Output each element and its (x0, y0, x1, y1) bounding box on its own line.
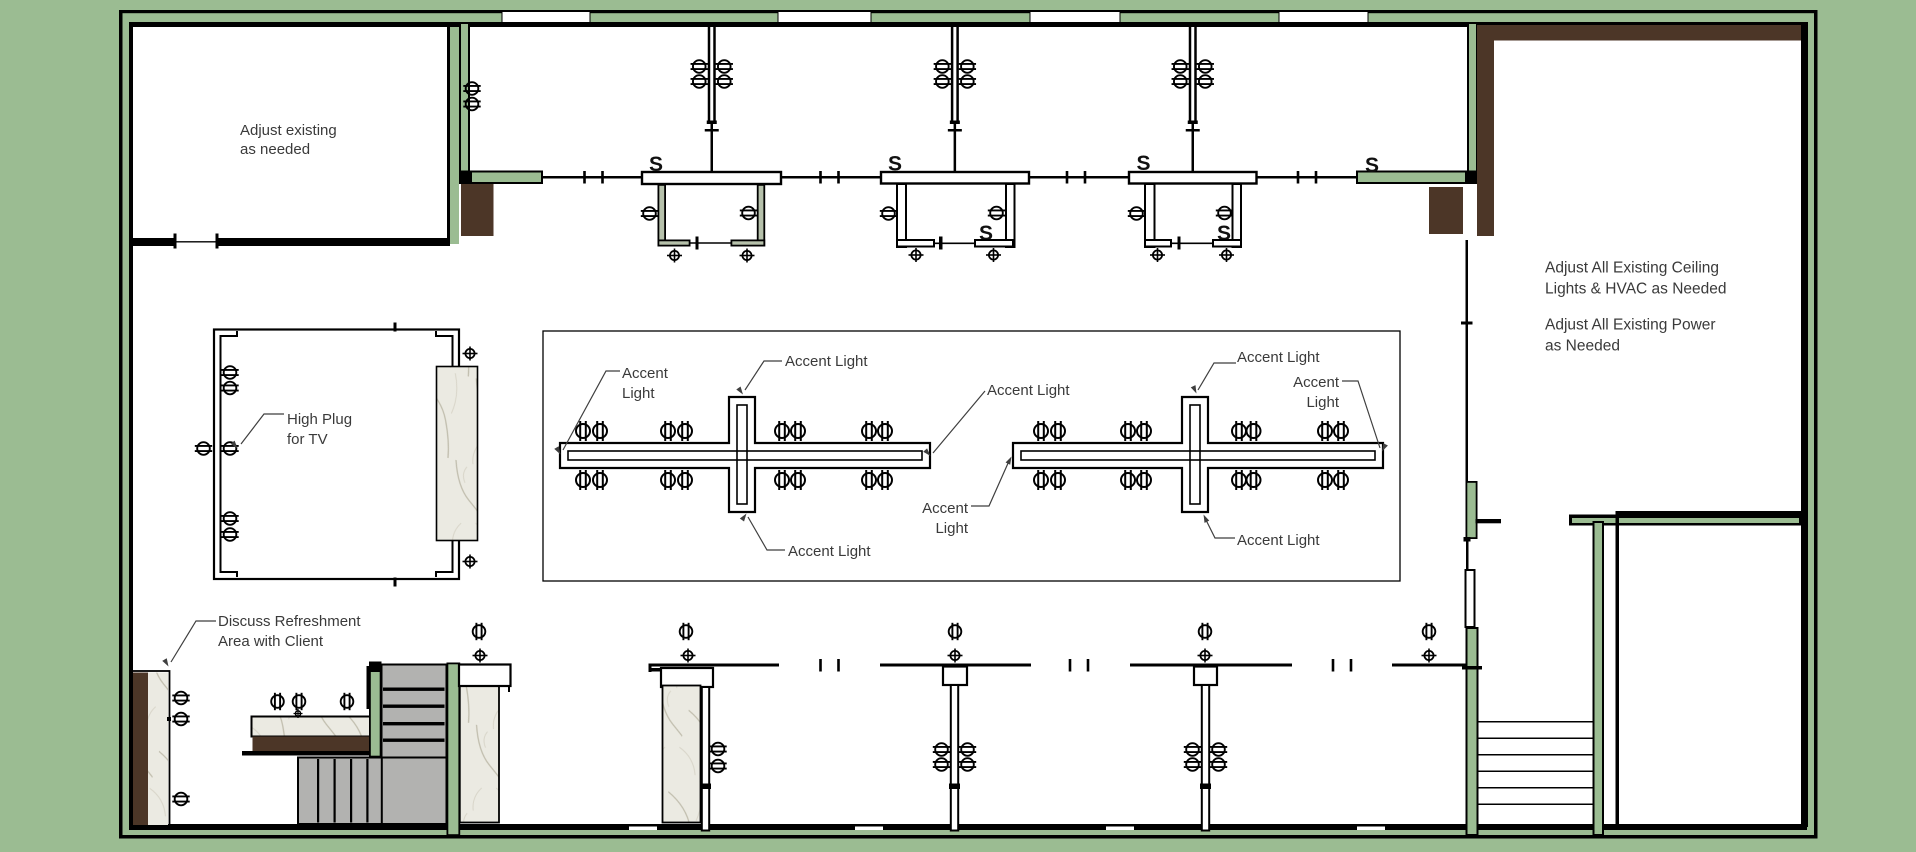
svg-text:Accent Light: Accent Light (1237, 532, 1320, 549)
svg-text:Accent Light: Accent Light (1237, 349, 1320, 366)
svg-text:Adjust All Existing Ceiling: Adjust All Existing Ceiling (1545, 260, 1719, 277)
svg-text:High Plug: High Plug (287, 411, 352, 428)
svg-text:Light: Light (935, 520, 968, 537)
svg-text:Light: Light (1306, 394, 1339, 411)
svg-text:S: S (1137, 152, 1151, 175)
svg-text:Accent: Accent (922, 500, 969, 517)
svg-text:Accent: Accent (1293, 374, 1340, 391)
svg-text:Lights & HVAC as Needed: Lights & HVAC as Needed (1545, 281, 1727, 298)
svg-text:for TV: for TV (287, 431, 328, 448)
svg-text:Accent Light: Accent Light (987, 382, 1070, 399)
svg-text:Light: Light (622, 385, 655, 402)
svg-text:as needed: as needed (240, 141, 310, 158)
svg-text:Discuss Refreshment: Discuss Refreshment (218, 613, 361, 630)
svg-text:Accent: Accent (622, 365, 669, 382)
svg-text:Accent Light: Accent Light (788, 543, 871, 560)
svg-text:S: S (1365, 154, 1379, 177)
svg-text:as Needed: as Needed (1545, 338, 1620, 355)
svg-text:Accent Light: Accent Light (785, 353, 868, 370)
svg-text:S: S (649, 153, 663, 176)
svg-text:S: S (888, 153, 902, 176)
svg-text:Adjust existing: Adjust existing (240, 122, 337, 139)
svg-text:Adjust All Existing Power: Adjust All Existing Power (1545, 317, 1716, 334)
svg-text:Area with Client: Area with Client (218, 633, 324, 650)
